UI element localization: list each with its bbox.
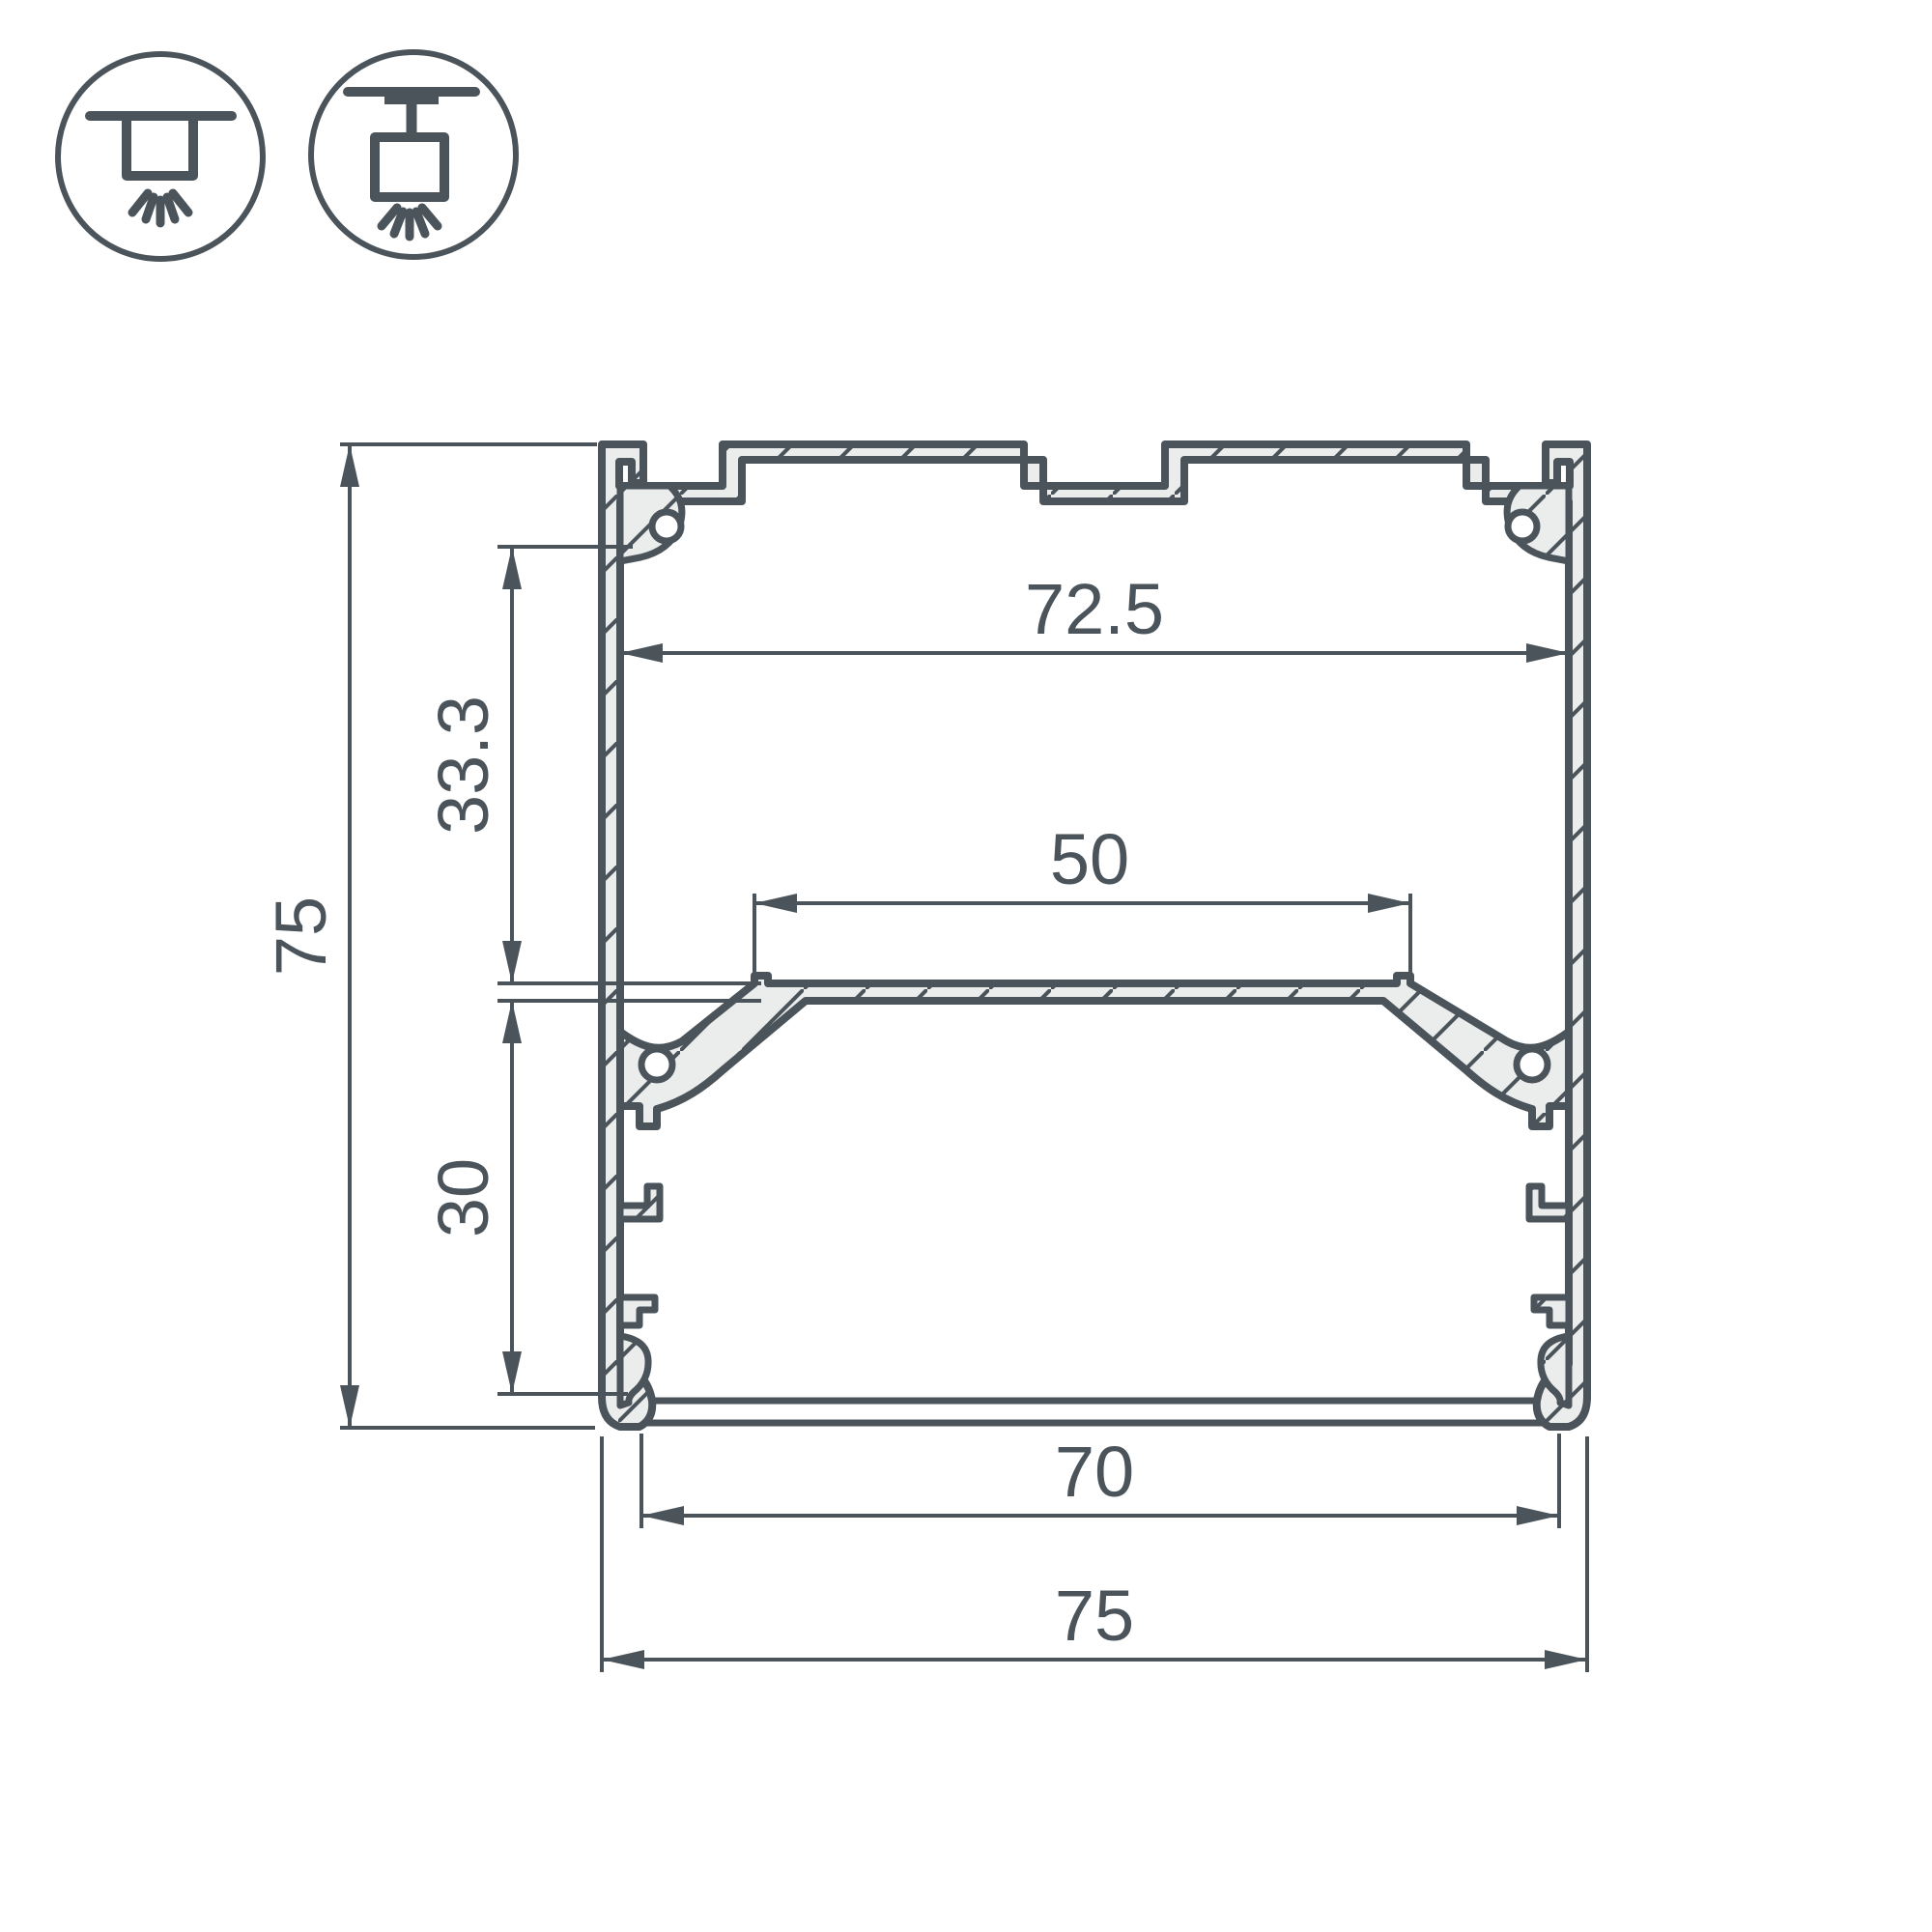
dimension-led-platform-width bbox=[754, 894, 1410, 978]
wall-hook-lower-left bbox=[620, 1297, 655, 1325]
light-rays-icon bbox=[132, 193, 188, 223]
screw-port-top-left bbox=[652, 512, 681, 541]
dimension-labels: 75 33.3 30 72.5 50 70 75 bbox=[261, 569, 1164, 1656]
led-shelf bbox=[620, 976, 1569, 1126]
wall-hook-upper-right bbox=[1529, 1186, 1569, 1219]
drawing-page: 75 33.3 30 72.5 50 70 75 bbox=[0, 0, 1932, 1932]
dimension-label-lower-inner-height: 30 bbox=[423, 1158, 503, 1237]
pendant-mount-icon bbox=[311, 52, 516, 257]
dimension-upper-inner-height bbox=[497, 547, 761, 1001]
dimensions bbox=[340, 444, 1587, 1672]
diffuser bbox=[629, 1401, 1560, 1423]
screw-port-shelf-left bbox=[641, 1049, 672, 1080]
screw-port-shelf-right bbox=[1517, 1049, 1548, 1080]
technical-drawing: 75 33.3 30 72.5 50 70 75 bbox=[0, 0, 1932, 1932]
dimension-total-height bbox=[340, 444, 597, 1428]
dimension-label-top-inner-width: 72.5 bbox=[1025, 569, 1164, 649]
dimension-label-bottom-opening-width: 70 bbox=[1055, 1432, 1134, 1512]
light-rays-icon bbox=[382, 208, 438, 237]
surface-mount-icon bbox=[58, 54, 263, 259]
dimension-label-total-height: 75 bbox=[261, 896, 341, 976]
dimension-label-total-width: 75 bbox=[1055, 1576, 1134, 1656]
screw-port-top-right bbox=[1508, 512, 1537, 541]
dimension-label-upper-inner-height: 33.3 bbox=[423, 696, 503, 835]
wall-hook-lower-right bbox=[1534, 1297, 1569, 1325]
mounting-icons bbox=[58, 52, 516, 259]
wall-hook-upper-left bbox=[620, 1186, 660, 1219]
dimension-label-led-platform-width: 50 bbox=[1050, 819, 1129, 899]
